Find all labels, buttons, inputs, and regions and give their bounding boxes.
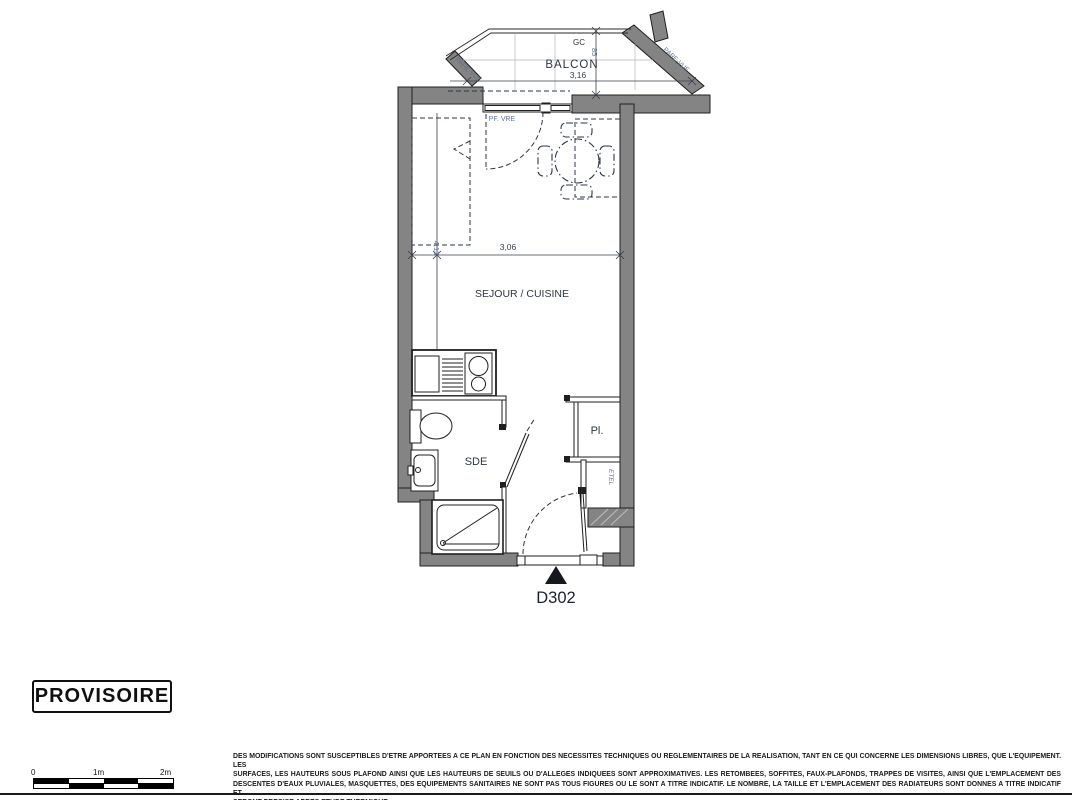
- wall-top-right: [572, 95, 710, 113]
- scale-tick-0: 0: [31, 768, 35, 777]
- sde-door-dashed: [527, 418, 535, 431]
- wall-hatched: [588, 508, 634, 527]
- table-top: [555, 139, 599, 183]
- label-window: PF. VRE: [489, 116, 516, 123]
- bed-outline: [412, 118, 470, 245]
- label-closet: Pl.: [591, 425, 604, 437]
- scale-bar: 0 1m 2m: [33, 768, 172, 792]
- closet-wall-bottom: [566, 457, 620, 462]
- wc-tank: [410, 410, 421, 443]
- plan-sheet: GC BALCON 3,16 85 PARE-VUE PARE-VUE PF. …: [0, 0, 1072, 800]
- door-frame-block: [499, 424, 506, 430]
- closet-wall-top: [566, 397, 620, 402]
- unit-number: D302: [536, 589, 575, 607]
- balcony-window: [483, 104, 572, 112]
- dim-living-width: 3,06: [500, 242, 517, 252]
- dim-balcony-width: 3,16: [570, 70, 587, 80]
- door-frame-end: [517, 556, 525, 565]
- provisional-stamp: PROVISOIRE: [32, 680, 172, 713]
- entrance-triangle-icon: [545, 566, 567, 584]
- chair-top: [561, 123, 592, 137]
- sheet-bottom-rule: [0, 793, 1072, 795]
- disclaimer-line: DES MODIFICATIONS SONT SUSCEPTIBLES D'ET…: [233, 752, 1061, 770]
- wall-bottom: [420, 553, 518, 566]
- scale-bar-box: [33, 778, 174, 789]
- partition-right-upper: [502, 400, 506, 427]
- closet-sliding-door: [574, 402, 578, 457]
- label-shelf: ETEL: [607, 469, 614, 486]
- closet-frame-block: [564, 456, 570, 462]
- scale-tick-2m: 2m: [160, 768, 171, 777]
- disclaimer-line: DESCENTES D'EAUX PLUVIALES, MASQUETTES, …: [233, 780, 1061, 798]
- label-gc: GC: [573, 38, 585, 47]
- scale-tick-1m: 1m: [93, 768, 104, 777]
- disclaimer-line: SURFACES, LES HAUTEURS SOUS PLAFOND AINS…: [233, 770, 1061, 779]
- sde-door-leaf: [504, 433, 529, 487]
- entrance-door-swing: [523, 493, 577, 554]
- dimension-lines: [408, 27, 696, 394]
- washbasin-tap: [408, 466, 413, 475]
- dining-table: [538, 119, 620, 199]
- door-frame-end: [580, 555, 597, 565]
- closet-frame-block: [564, 395, 570, 401]
- balcony-wall-stub: [650, 11, 668, 42]
- chair-right: [600, 146, 614, 176]
- dim-balcony-depth: 85: [590, 48, 599, 56]
- wc-bowl: [420, 413, 452, 439]
- floor-plan-svg: GC BALCON 3,16 85 PARE-VUE PARE-VUE PF. …: [0, 0, 1072, 660]
- kitchen-counter: [412, 350, 496, 396]
- label-living: SEJOUR / CUISINE: [475, 288, 569, 300]
- label-shower-room: SDE: [465, 456, 488, 468]
- dim-living-depth: 4,13: [432, 241, 441, 256]
- door-hinge-block: [578, 487, 586, 494]
- chair-left: [538, 146, 552, 176]
- partition-top: [412, 396, 506, 400]
- wall-right: [620, 104, 634, 566]
